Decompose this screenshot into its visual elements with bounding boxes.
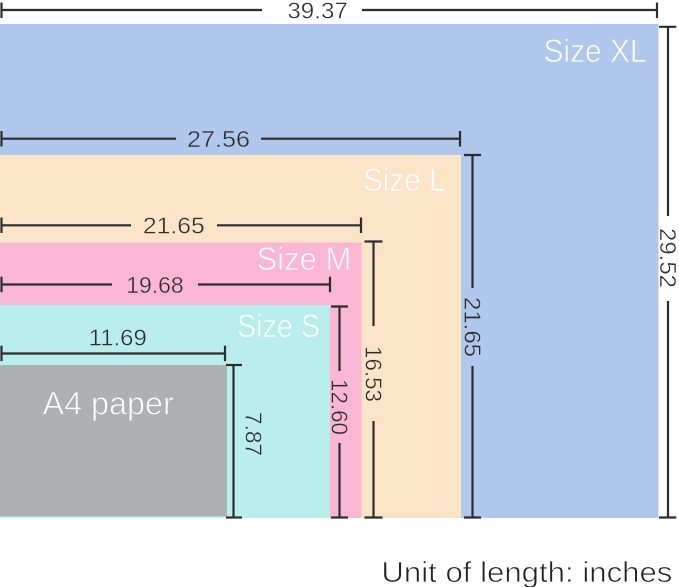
svg-text:Size XL: Size XL [544,33,647,69]
svg-text:Size L: Size L [363,162,446,198]
svg-text:39.37: 39.37 [287,0,347,23]
svg-text:A4 paper: A4 paper [43,386,175,422]
svg-text:Size S: Size S [237,308,320,344]
svg-text:7.87: 7.87 [241,412,267,456]
svg-text:Size M: Size M [257,241,352,277]
svg-text:Unit of length: inches: Unit of length: inches [381,557,672,587]
svg-text:12.60: 12.60 [327,379,353,435]
svg-text:21.65: 21.65 [143,213,205,239]
svg-text:21.65: 21.65 [460,297,486,357]
svg-text:16.53: 16.53 [361,346,387,402]
svg-text:19.68: 19.68 [126,272,183,298]
svg-text:29.52: 29.52 [655,228,679,288]
svg-text:11.69: 11.69 [89,325,147,351]
svg-text:27.56: 27.56 [187,126,250,152]
